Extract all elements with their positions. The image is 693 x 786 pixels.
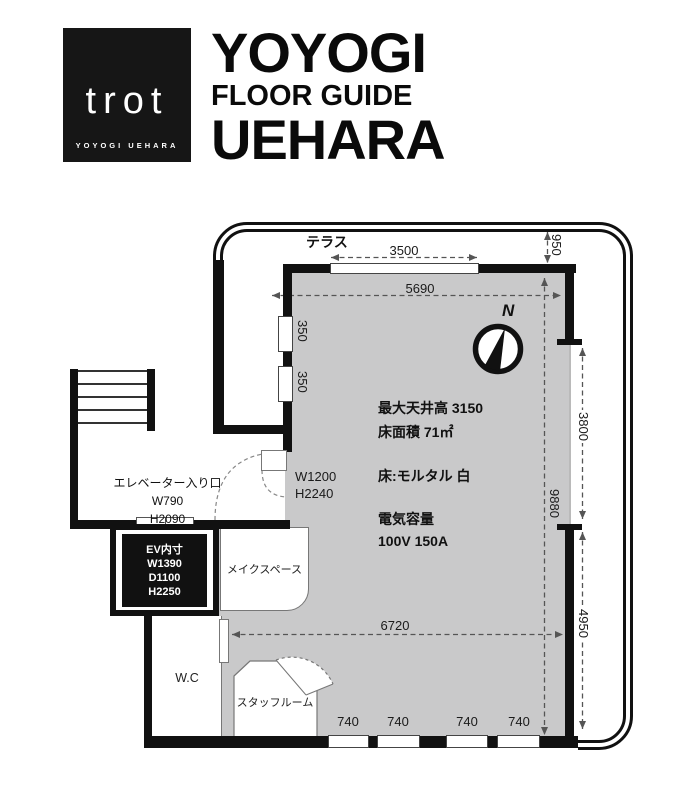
elevator-entrance-line3: H2090 bbox=[105, 510, 230, 528]
wall-studio-east-upper bbox=[565, 264, 574, 345]
elevator-entrance-label: エレベーター入り口 W790 H2090 bbox=[105, 474, 230, 528]
plan-annotations bbox=[0, 0, 693, 786]
terrace-label: テラス bbox=[306, 232, 348, 252]
dim-740-label-3: 740 bbox=[447, 714, 487, 729]
wall-exterior-west bbox=[213, 260, 224, 434]
wall-stair-west bbox=[70, 369, 78, 529]
spec-ceiling-height: 最大天井高 3150 bbox=[378, 398, 483, 418]
west-window-2 bbox=[278, 366, 293, 402]
floor-guide-page: trot YOYOGI UEHARA YOYOGI FLOOR GUIDE UE… bbox=[0, 0, 693, 786]
spec-floor-area: 床面積 71㎡ bbox=[378, 422, 453, 442]
wall-studio-west bbox=[283, 264, 292, 452]
west-window-1 bbox=[278, 316, 293, 352]
south-window-1 bbox=[328, 735, 369, 748]
dim-4950-label: 4950 bbox=[576, 607, 590, 640]
entrance-door-swing-arc-small bbox=[262, 470, 287, 497]
dim-740-label-4: 740 bbox=[499, 714, 539, 729]
spec-floor-material: 床:モルタル 白 bbox=[378, 466, 471, 486]
south-window-3 bbox=[446, 735, 488, 748]
stair-step bbox=[78, 383, 147, 385]
entrance-door-spec-height: H2240 bbox=[295, 486, 333, 501]
dim-5690-label: 5690 bbox=[396, 281, 444, 296]
wc-label: W.C bbox=[152, 671, 222, 685]
compass-north-label: N bbox=[502, 301, 514, 321]
ev-spec-line3: D1100 bbox=[122, 571, 207, 585]
stair-step bbox=[78, 396, 147, 398]
dim-950-label: 950 bbox=[549, 234, 563, 256]
spec-power-title: 電気容量 bbox=[378, 509, 434, 529]
dim-6720-label: 6720 bbox=[371, 618, 419, 633]
south-window-4 bbox=[497, 735, 540, 748]
dim-350-label-2: 350 bbox=[295, 371, 309, 393]
ev-spec-line1: EV内寸 bbox=[122, 543, 207, 557]
elevator-entrance-line2: W790 bbox=[105, 492, 230, 510]
dim-3800-label: 3800 bbox=[576, 410, 590, 443]
ev-spec-line2: W1390 bbox=[122, 557, 207, 571]
dim-740-label-2: 740 bbox=[378, 714, 418, 729]
wall-cap-east-upper bbox=[557, 339, 582, 345]
south-window-2 bbox=[377, 735, 420, 748]
stair-step bbox=[78, 409, 147, 411]
wall-hall-north bbox=[213, 425, 290, 434]
stair-step bbox=[78, 422, 147, 424]
dim-740-label-1: 740 bbox=[328, 714, 368, 729]
dim-9880-label: 9880 bbox=[547, 489, 561, 518]
wall-stair-east bbox=[147, 369, 155, 431]
entrance-door-leaf bbox=[261, 450, 287, 471]
wc-door bbox=[219, 619, 229, 663]
entrance-door-spec-width: W1200 bbox=[295, 469, 336, 484]
ev-spec-line4: H2250 bbox=[122, 585, 207, 599]
elevator-interior-spec: EV内寸 W1390 D1100 H2250 bbox=[122, 534, 207, 607]
elevator-entrance-line1: エレベーター入り口 bbox=[105, 474, 230, 492]
dim-350-label-1: 350 bbox=[295, 320, 309, 342]
wall-wc-west bbox=[144, 611, 152, 741]
spec-power-value: 100V 150A bbox=[378, 533, 448, 549]
dim-3500-label: 3500 bbox=[380, 243, 428, 258]
stair-step bbox=[78, 370, 147, 372]
wall-studio-east-lower bbox=[565, 524, 574, 740]
terrace-window bbox=[330, 263, 479, 274]
wall-cap-east-lower bbox=[557, 524, 582, 530]
staff-room-label: スタッフルーム bbox=[233, 694, 317, 710]
